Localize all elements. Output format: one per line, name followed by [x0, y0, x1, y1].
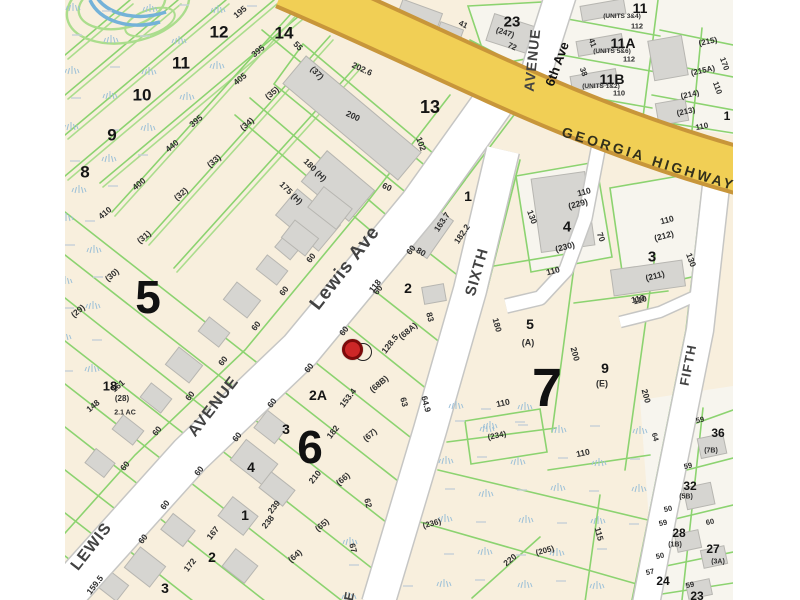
location-marker[interactable] — [342, 339, 363, 360]
map-container: Lewis AveAVENUELEWISSIXTHFIFTHAVENUE6th … — [0, 0, 800, 600]
map-background — [65, 0, 733, 600]
map-canvas — [65, 0, 733, 600]
